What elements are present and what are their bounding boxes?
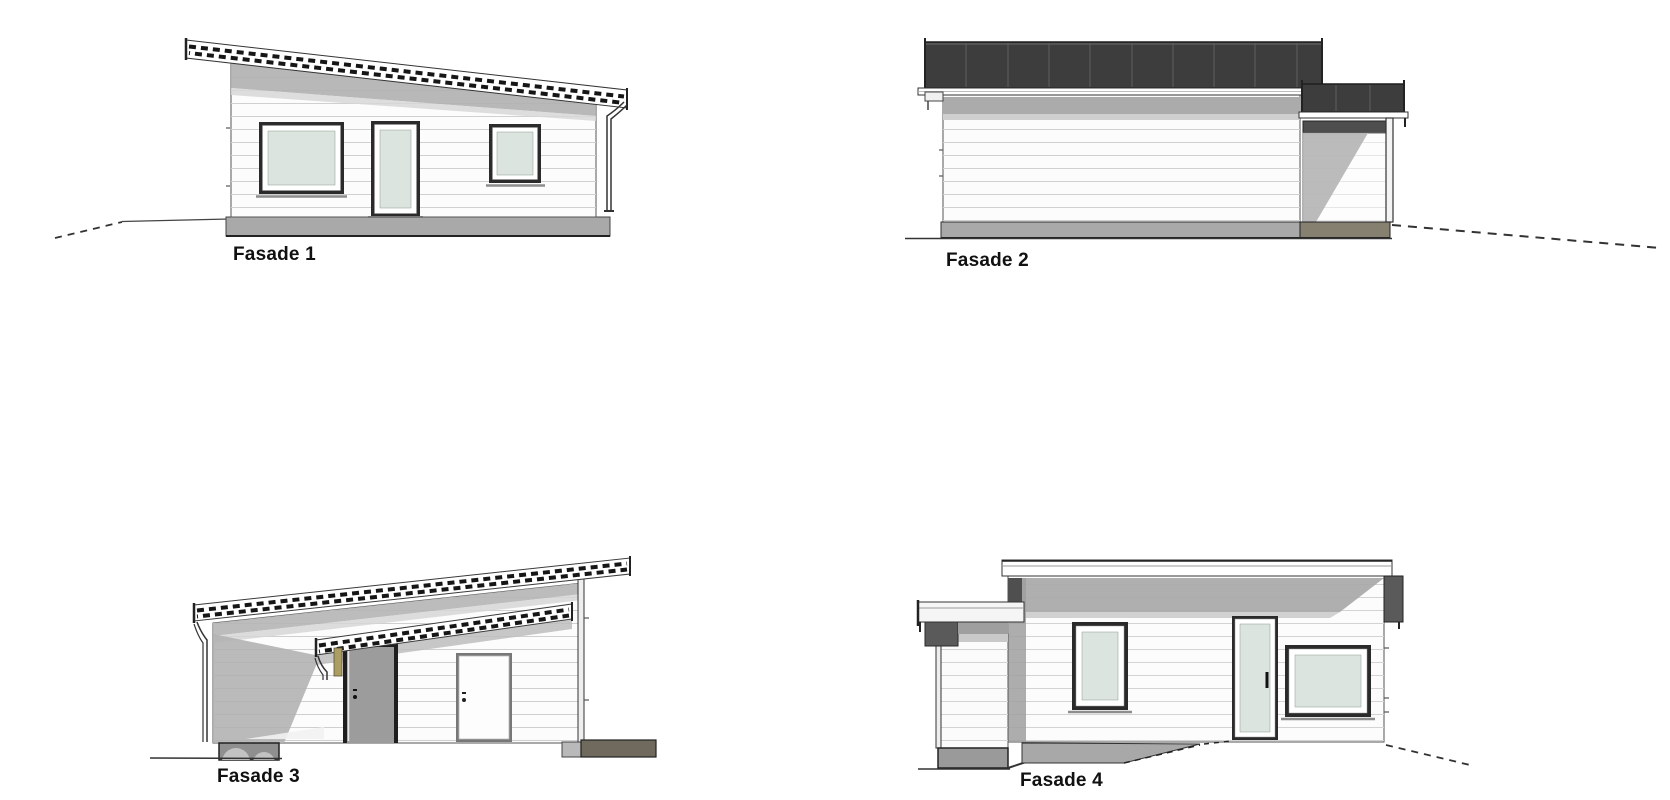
gutter-downspout	[604, 102, 627, 211]
window-small	[1068, 622, 1132, 712]
carport-opening	[1303, 121, 1386, 222]
fasade-4-label: Fasade 4	[1020, 770, 1103, 792]
terrain-line	[1392, 225, 1660, 248]
ground-line	[150, 758, 282, 759]
eave-left	[925, 92, 943, 110]
dimension-ticks	[226, 128, 230, 186]
elevation-sheet: Fasade 1	[0, 0, 1670, 800]
wall	[943, 95, 1300, 222]
window-small	[486, 124, 545, 186]
carport-post	[1386, 118, 1393, 222]
entry-door-glass	[368, 121, 423, 217]
roof-fascia	[1002, 560, 1392, 576]
fasade-4-drawing	[850, 543, 1560, 775]
fasade-2-drawing	[895, 30, 1670, 250]
fasade-2-label: Fasade 2	[946, 250, 1029, 272]
ramp	[1022, 741, 1232, 763]
fasade-3-drawing	[140, 543, 670, 766]
foundation-block-left	[219, 743, 279, 766]
door-glass	[1232, 616, 1278, 740]
carport	[918, 600, 1024, 748]
downspout-left	[194, 622, 207, 742]
roof-edge-right	[1384, 576, 1403, 629]
door-white	[456, 653, 512, 742]
foundation-block-right	[562, 740, 656, 757]
carport-foundation	[918, 748, 1026, 769]
foundation	[941, 222, 1390, 238]
door-gray	[343, 643, 398, 743]
dimension-ticks	[939, 150, 943, 176]
fasade-1-drawing	[40, 28, 640, 245]
dimension-ticks	[1384, 648, 1389, 712]
roof-main	[925, 38, 1322, 91]
corner-board	[578, 577, 589, 742]
window-large	[1281, 645, 1375, 719]
fasade-1-label: Fasade 1	[233, 244, 316, 266]
foundation	[226, 217, 610, 236]
window-large	[256, 122, 347, 197]
fasade-3-label: Fasade 3	[217, 766, 300, 788]
terrain-line	[55, 219, 229, 238]
terrain-line	[1386, 745, 1470, 765]
